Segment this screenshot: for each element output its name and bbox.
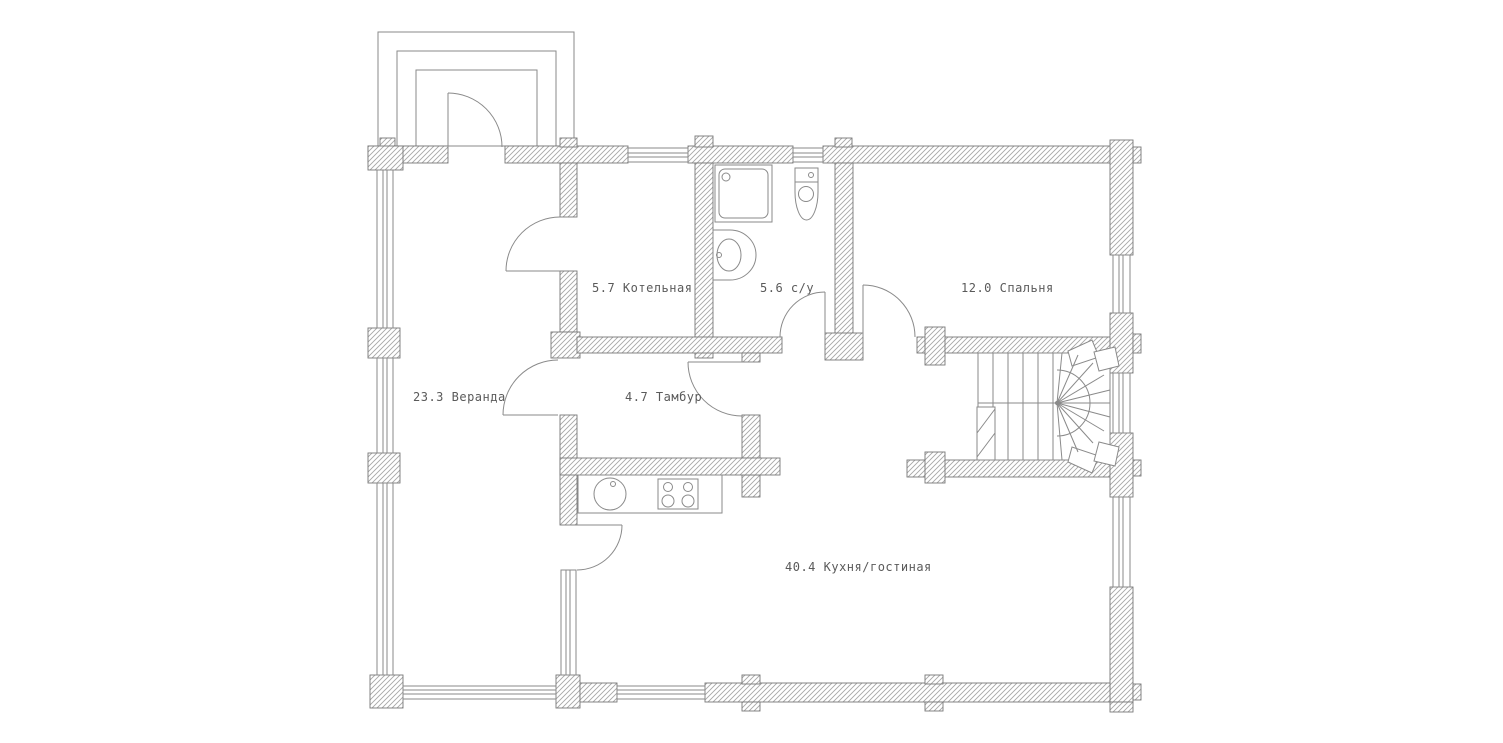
- door-kitchen-from-tambour: [688, 362, 742, 416]
- door-entry-porch: [448, 93, 502, 147]
- window: [1113, 373, 1130, 433]
- wall-segment: [577, 337, 782, 353]
- wall-notch: [1110, 702, 1133, 712]
- wall-notch: [695, 136, 713, 147]
- room-label-veranda: 23.3 Веранда: [413, 390, 506, 404]
- room-label-kitchen: 40.4 Кухня/гостиная: [785, 560, 932, 574]
- toilet: [795, 168, 818, 220]
- wall-segment: [1110, 587, 1133, 702]
- window: [377, 358, 393, 453]
- wall-segment: [695, 163, 713, 358]
- wall-segment: [560, 458, 780, 475]
- wall-segment: [580, 683, 617, 702]
- window: [793, 148, 823, 162]
- shower-tray: [715, 165, 772, 222]
- entry-porch: [378, 32, 574, 146]
- window: [628, 148, 688, 162]
- staircase: [977, 340, 1119, 473]
- wall-segment: [1110, 140, 1133, 255]
- room-label-tambour: 4.7 Тамбур: [625, 390, 702, 404]
- door-boiler-room: [506, 217, 560, 271]
- room-label-boiler: 5.7 Котельная: [592, 281, 692, 295]
- window: [561, 570, 576, 675]
- porch-step-outer: [378, 32, 574, 146]
- wall-pier: [368, 453, 400, 483]
- window: [1113, 497, 1130, 587]
- window: [1113, 255, 1130, 313]
- floor-plan-drawing: 23.3 Веранда 5.7 Котельная 5.6 с/у 12.0 …: [0, 0, 1503, 743]
- wall-segment: [823, 146, 1133, 163]
- wall-notch: [835, 138, 852, 147]
- wall-segment: [688, 146, 793, 163]
- wall-segment: [505, 146, 628, 163]
- wall-stub: [742, 475, 760, 497]
- wall-segment: [560, 163, 577, 217]
- wall-segment: [742, 415, 760, 458]
- kitchen-fixtures: [578, 475, 722, 513]
- wall-notch: [1133, 684, 1141, 700]
- door-tambour-from-veranda: [503, 360, 558, 415]
- wall-corner: [370, 675, 403, 708]
- wall-pier: [368, 328, 400, 358]
- bathroom-fixtures: [713, 165, 818, 280]
- porch-step-middle: [397, 51, 556, 146]
- window: [377, 483, 393, 675]
- window: [617, 686, 705, 699]
- door-kitchen-from-veranda: [577, 525, 622, 570]
- stove: [658, 479, 698, 509]
- wall-notch: [1133, 460, 1141, 476]
- room-labels: 23.3 Веранда 5.7 Котельная 5.6 с/у 12.0 …: [413, 281, 1054, 574]
- window: [403, 686, 556, 699]
- wall-segment: [560, 271, 577, 332]
- stair-break-mark: [977, 407, 995, 460]
- wall-segment: [705, 683, 1110, 702]
- window: [377, 170, 393, 328]
- wall-cross: [556, 675, 580, 708]
- wall-notch: [1133, 334, 1141, 353]
- wall-block: [825, 333, 863, 360]
- wall-notch: [925, 702, 943, 711]
- door-bedroom: [863, 285, 915, 337]
- wall-notch: [742, 675, 760, 684]
- wall-notch: [1133, 147, 1141, 163]
- wall-segment: [835, 163, 853, 337]
- room-label-bathroom: 5.6 с/у: [760, 281, 814, 295]
- wall-notch: [925, 675, 943, 684]
- wall-cross: [551, 332, 580, 358]
- room-label-bedroom: 12.0 Спальня: [961, 281, 1054, 295]
- porch-step-inner: [416, 70, 537, 146]
- floor-plan: 23.3 Веранда 5.7 Котельная 5.6 с/у 12.0 …: [0, 0, 1503, 743]
- wall-cross: [925, 452, 945, 483]
- washbasin: [713, 230, 756, 280]
- door-bathroom: [780, 292, 825, 337]
- wall-cross: [925, 327, 945, 365]
- wall-notch: [742, 702, 760, 711]
- kitchen-counter: [578, 475, 722, 513]
- wall-notch: [560, 138, 577, 147]
- wall-stub: [742, 353, 760, 362]
- wall-corner: [368, 146, 403, 170]
